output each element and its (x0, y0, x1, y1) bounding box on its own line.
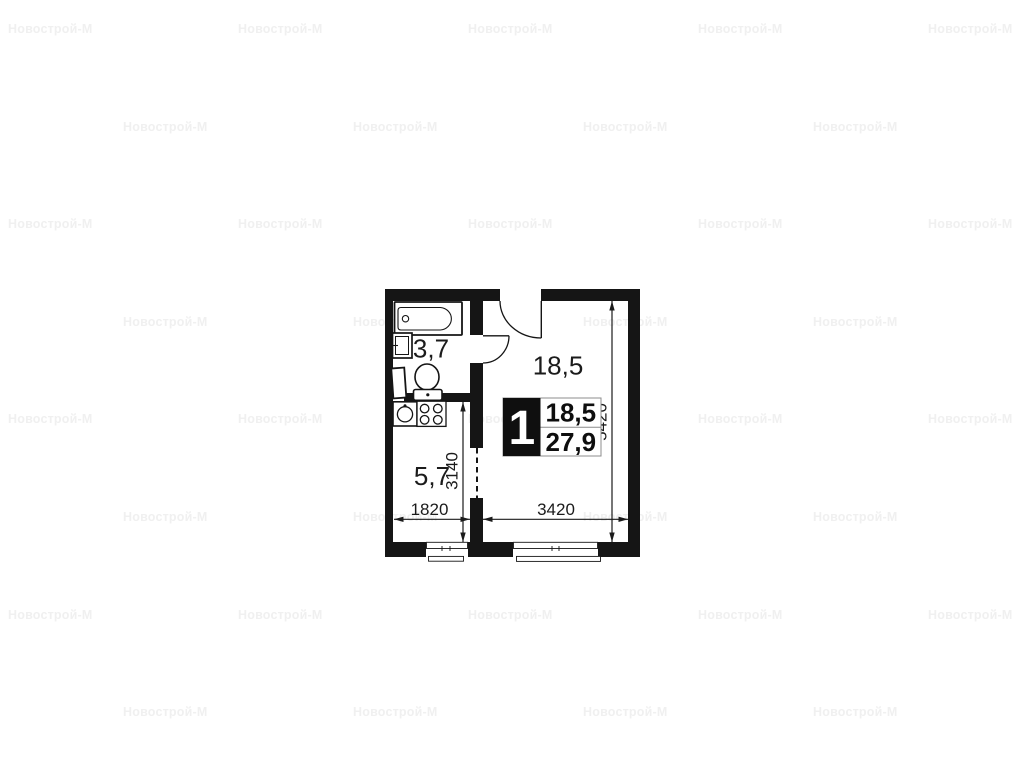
badge-living-area: 18,5 (545, 398, 596, 428)
wall-partition-mid (470, 363, 483, 448)
watermark-text: Новострой-М (928, 413, 1012, 426)
window-sill (429, 556, 464, 561)
kitchen-area-label: 5,7 (414, 461, 450, 491)
watermark-text: Новострой-М (813, 706, 897, 719)
wall-top-right (541, 289, 640, 301)
arrow-up (460, 402, 465, 412)
watermark-text: Новострой-М (928, 609, 1012, 622)
watermark-text: Новострой-М (8, 23, 92, 36)
watermark-text: Новострой-М (468, 23, 552, 36)
watermark-text: Новострой-М (8, 609, 92, 622)
watermark-text: Новострой-М (468, 609, 552, 622)
watermark-text: Новострой-М (123, 511, 207, 524)
entry-door-arc (500, 301, 541, 338)
watermark-text: Новострой-М (8, 218, 92, 231)
wall-bottom-3 (598, 542, 640, 557)
window-kitchen (426, 541, 468, 561)
wall-left (385, 289, 393, 557)
wall-bottom-1 (385, 542, 426, 557)
windows (426, 541, 601, 561)
dim-label-kitchen-width: 1820 (411, 500, 449, 519)
watermark-text: Новострой-М (123, 316, 207, 329)
stove (417, 401, 446, 426)
watermark-text: Новострой-М (123, 121, 207, 134)
watermark-text: Новострой-М (238, 609, 322, 622)
watermark-text: Новострой-М (468, 218, 552, 231)
watermark-text: Новострой-М (238, 413, 322, 426)
arrow-down (609, 533, 614, 543)
kitchen-sink (393, 402, 417, 426)
watermark-text: Новострой-М (928, 218, 1012, 231)
dimension-kitchen-width: 1820 (394, 500, 470, 522)
badge-rooms-count: 1 (508, 402, 535, 455)
floor-plan: 5420 3140 1820 3420 3,7 (383, 282, 645, 566)
living-room-area-label: 18,5 (533, 351, 584, 381)
badge-total-area: 27,9 (545, 427, 596, 457)
watermark-text: Новострой-М (123, 706, 207, 719)
wall-partition-top (470, 301, 483, 335)
dim-label-room-width: 3420 (537, 500, 575, 519)
watermark-text: Новострой-М (698, 609, 782, 622)
watermark-text: Новострой-М (238, 23, 322, 36)
watermark-text: Новострой-М (928, 23, 1012, 36)
bathroom-area-label: 3,7 (413, 334, 449, 364)
watermark-text: Новострой-М (353, 706, 437, 719)
arrow-down (460, 533, 465, 543)
watermark-text: Новострой-М (238, 218, 322, 231)
bathroom-sink (393, 333, 413, 358)
arrow-up (609, 301, 614, 311)
apartment-info-badge: 1 18,5 27,9 (503, 398, 601, 457)
wall-bottom-2 (468, 542, 513, 557)
watermark-text: Новострой-М (813, 121, 897, 134)
watermark-text: Новострой-М (698, 218, 782, 231)
arrow-left (394, 517, 404, 522)
wall-right (628, 289, 640, 557)
arrow-right (619, 517, 629, 522)
window-living-room (513, 541, 601, 561)
room-door-arc (483, 336, 509, 363)
bathroom-door-leaf (391, 368, 406, 399)
fixtures (393, 302, 463, 426)
toilet (414, 364, 443, 400)
watermark-text: Новострой-М (583, 706, 667, 719)
watermark-text: Новострой-М (698, 413, 782, 426)
watermark-text: Новострой-М (813, 511, 897, 524)
dimension-room-width: 3420 (483, 500, 628, 522)
page-background: Новострой-МНовострой-МНовострой-МНовостр… (0, 0, 1024, 768)
arrow-left (483, 517, 493, 522)
watermark-text: Новострой-М (813, 316, 897, 329)
watermark-text: Новострой-М (353, 121, 437, 134)
window-sill (517, 556, 601, 561)
watermark-text: Новострой-М (8, 413, 92, 426)
faucet (404, 404, 407, 407)
bathtub (395, 302, 463, 335)
wall-partition-bottom (470, 498, 483, 542)
watermark-text: Новострой-М (583, 121, 667, 134)
wall-top-left (385, 289, 500, 301)
watermark-text: Новострой-М (698, 23, 782, 36)
arrow-right (461, 517, 471, 522)
